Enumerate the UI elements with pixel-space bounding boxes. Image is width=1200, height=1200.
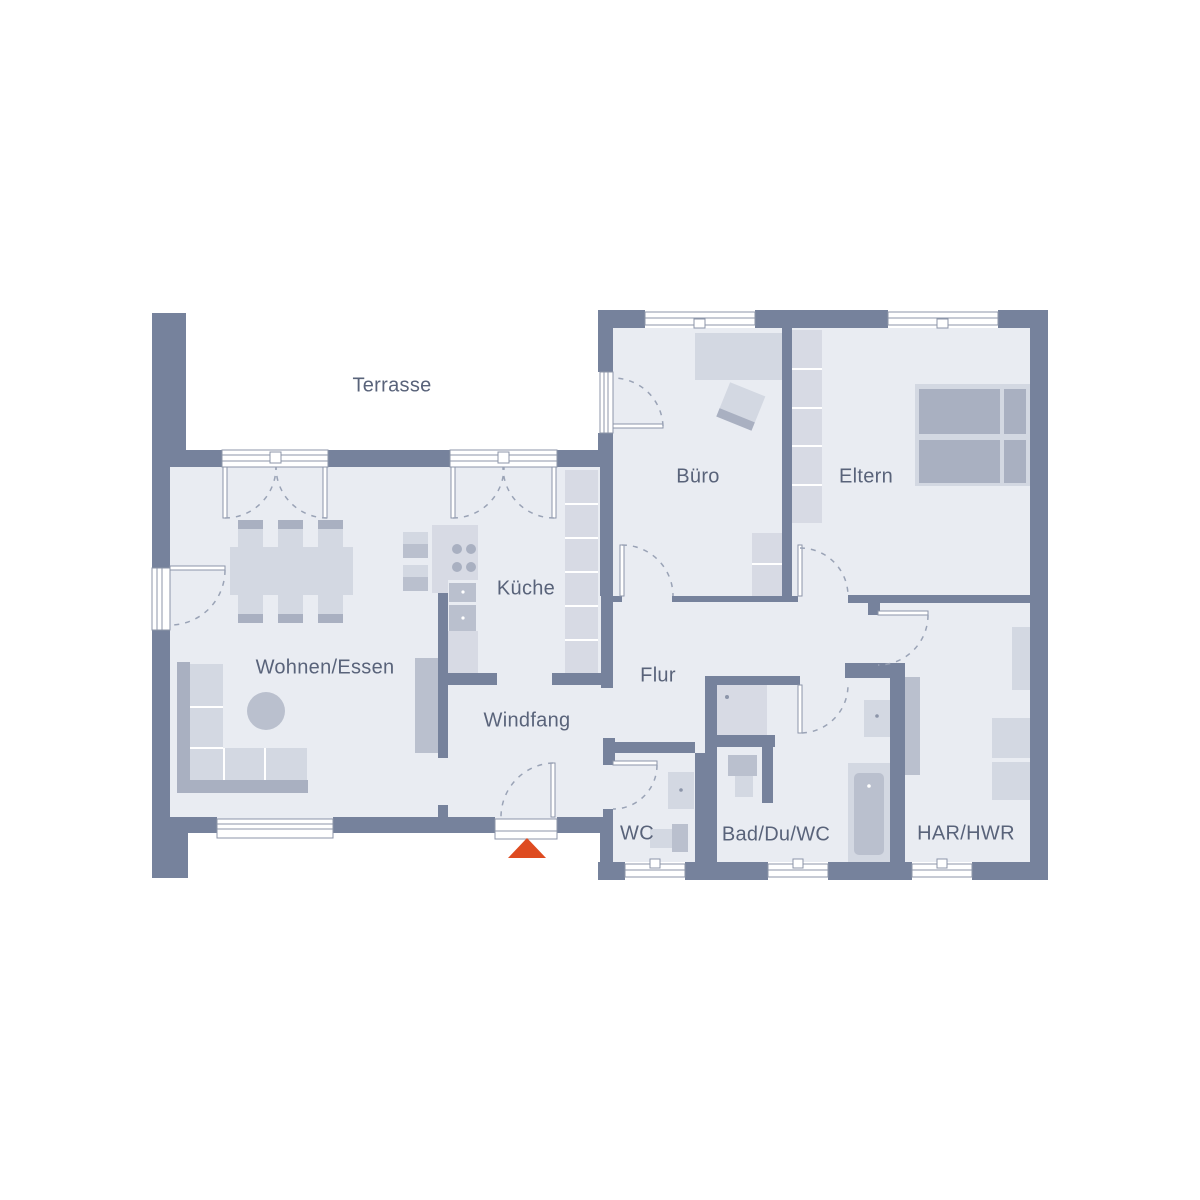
wall-segment [603, 809, 613, 817]
double-bed [915, 384, 1030, 486]
kitchen-sink-part [461, 616, 464, 619]
double-bed-part [919, 440, 1000, 483]
window-handle [270, 452, 281, 463]
window-west-door [152, 568, 170, 630]
door-french-living-part [323, 467, 327, 518]
door-west-terrace-part [170, 566, 225, 570]
kitchen-sink [449, 583, 476, 631]
room-label-har-hwr: HAR/HWR [917, 823, 1015, 846]
door-buero-part [620, 545, 624, 596]
wall-segment [438, 593, 448, 758]
wall-segment [707, 676, 800, 685]
wall-segment [828, 862, 912, 880]
sideboard [415, 658, 438, 753]
door-entrance-part [495, 831, 557, 839]
wall-segment [600, 817, 613, 862]
door-entrance-part [551, 763, 555, 817]
wardrobe [792, 330, 822, 523]
entrance-arrow-icon [508, 838, 546, 858]
kitchen-stools-part [403, 532, 428, 544]
dining-chairs-part [318, 595, 343, 614]
wc-toilet-part [672, 824, 688, 852]
wall-segment [603, 742, 695, 753]
kitchen-stools-part [403, 565, 428, 577]
wall-segment [848, 595, 1030, 603]
dining-chairs-part [278, 614, 303, 623]
room-label-eltern: Eltern [839, 466, 893, 489]
dining-chairs-part [238, 520, 263, 529]
wall-segment [685, 862, 768, 880]
desk [695, 333, 782, 380]
dining-chairs-part [238, 614, 263, 623]
wall-segment [845, 663, 905, 678]
double-bed-part [1004, 389, 1026, 434]
window-buero [645, 312, 755, 328]
double-bed-part [1004, 440, 1026, 483]
wall-segment [333, 817, 495, 833]
kitchen-sink-part [461, 590, 464, 593]
window-handle [937, 859, 947, 868]
kitchen-counter [432, 525, 448, 593]
wall-segment [152, 833, 188, 878]
dining-chairs-part [318, 520, 343, 529]
wall-segment [613, 596, 622, 602]
wall-segment [152, 450, 170, 833]
wall-segment [598, 862, 625, 880]
room-label-wc: WC [620, 823, 654, 846]
bathtub-part [867, 784, 871, 788]
shower-part [717, 685, 767, 735]
bad-toilet-part [735, 776, 753, 797]
double-bed-part [919, 389, 1000, 434]
sofa-part [177, 780, 308, 793]
har-cabinet-west [905, 677, 920, 775]
wardrobe-part [792, 330, 822, 523]
wall-segment [598, 310, 645, 328]
buero-closet [752, 533, 782, 596]
wc-sink-part [679, 788, 683, 792]
room-label-bad: Bad/Du/WC [722, 824, 830, 847]
shower [717, 685, 767, 735]
window-handle [650, 859, 660, 868]
har-cabinet-east [1012, 627, 1030, 690]
wall-segment [782, 328, 792, 596]
door-buero-terrace-part [613, 424, 663, 428]
cooktop-part [452, 544, 462, 554]
window-eltern [888, 312, 998, 328]
door-eltern-part [798, 545, 802, 596]
dining-table [230, 547, 353, 595]
sofa-part [177, 662, 190, 793]
furniture-kitchen-part [448, 525, 478, 538]
wall-segment [600, 452, 613, 596]
room-label-wohnen-essen: Wohnen/Essen [256, 657, 395, 680]
door-bad-part [798, 685, 802, 733]
dining-chairs-part [238, 595, 263, 614]
window-living-south [217, 819, 333, 838]
window-handle [937, 319, 948, 328]
wall-segment [438, 805, 448, 817]
wall-segment [755, 310, 888, 328]
wall-segment [695, 753, 717, 862]
door-entrance-part [495, 819, 557, 831]
door-har-part [878, 611, 928, 615]
window-handle [694, 319, 705, 328]
cooktop-part [448, 538, 478, 580]
dining-chairs-part [318, 614, 343, 623]
wc-sink [668, 772, 694, 809]
wall-segment [707, 735, 775, 747]
dining-chairs-part [318, 529, 343, 548]
window-buero-terrace-door-part [600, 372, 613, 433]
room-label-flur: Flur [640, 665, 676, 688]
floor-plan-drawing [0, 0, 1200, 1200]
wall-segment [152, 313, 186, 450]
wall-segment [972, 862, 1048, 880]
dining-chairs-part [238, 529, 263, 548]
coffee-table [247, 692, 285, 730]
wall-segment [890, 678, 905, 862]
bad-sink-part [864, 700, 890, 737]
room-label-buero: Büro [676, 466, 719, 489]
door-french-kitchen-part [451, 467, 455, 518]
door-french-kitchen-part [552, 467, 556, 518]
wall-segment [170, 817, 217, 833]
door-wc-part [613, 761, 657, 765]
window-buero-terrace-door [600, 372, 613, 433]
wall-segment [168, 450, 222, 467]
washer [992, 718, 1030, 758]
wall-segment [448, 673, 497, 685]
wall-segment [328, 450, 450, 467]
room-label-kueche: Küche [497, 578, 555, 601]
sofa-part [190, 748, 307, 780]
cooktop-part [452, 562, 462, 572]
bad-toilet-part [728, 755, 757, 776]
dining-chairs-part [278, 520, 303, 529]
bad-sink-part [875, 714, 879, 718]
window-handle [793, 859, 803, 868]
wall-segment [762, 747, 773, 803]
window-terrace-door-living [222, 450, 328, 467]
bad-sink [864, 700, 890, 737]
cooktop-part [466, 544, 476, 554]
wall-segment [552, 673, 603, 685]
window-handle [498, 452, 509, 463]
wall-segment [672, 596, 798, 602]
wall-segment [1030, 310, 1048, 880]
cooktop [448, 538, 478, 580]
wall-segment [598, 433, 613, 452]
shower-part [725, 695, 729, 699]
bathtub [848, 763, 890, 862]
kitchen-cabinets [565, 470, 598, 673]
room-label-terrasse: Terrasse [352, 375, 431, 398]
window-west-door-part [152, 568, 170, 630]
cooktop-part [466, 562, 476, 572]
floor-plan: Terrasse Büro Eltern Küche Wohnen/Essen … [0, 0, 1200, 1200]
room-label-windfang: Windfang [484, 710, 571, 733]
dining-chairs-part [278, 529, 303, 548]
door-french-living-part [223, 467, 227, 518]
dryer [992, 762, 1030, 800]
furniture-kitchen-part [448, 631, 478, 673]
dining-chairs-part [278, 595, 303, 614]
window-terrace-door-kitchen [450, 450, 557, 467]
